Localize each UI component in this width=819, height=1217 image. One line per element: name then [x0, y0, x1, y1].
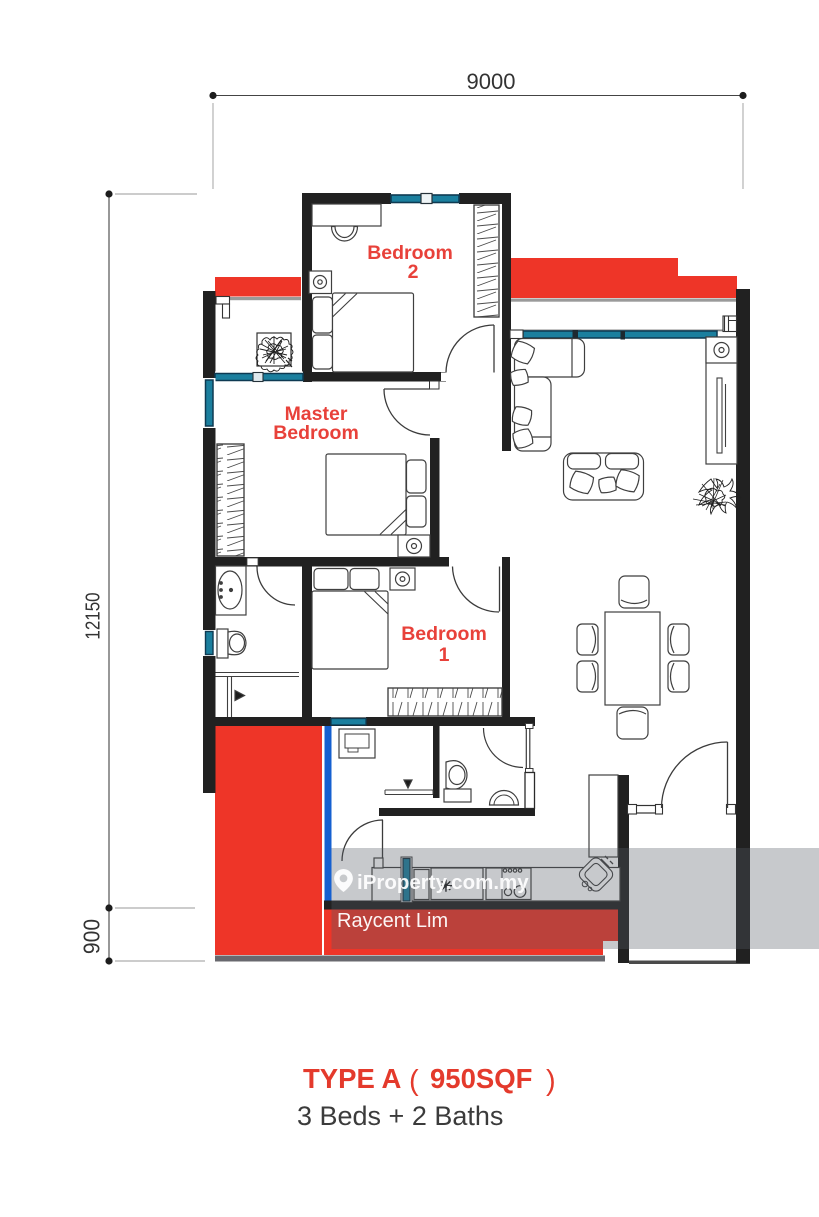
svg-text:12150: 12150	[81, 592, 104, 639]
svg-text:9000: 9000	[467, 69, 516, 94]
svg-text:900: 900	[79, 919, 105, 954]
svg-text:iProperty.com.my: iProperty.com.my	[357, 871, 529, 894]
svg-text:(: (	[409, 1065, 419, 1097]
svg-text:1: 1	[439, 644, 450, 666]
svg-text:TYPE A: TYPE A	[303, 1063, 401, 1094]
svg-text:Raycent Lim: Raycent Lim	[337, 910, 448, 932]
svg-text:3 Beds + 2 Baths: 3 Beds + 2 Baths	[297, 1101, 503, 1131]
svg-text:Bedroom: Bedroom	[273, 422, 359, 444]
svg-text:): )	[546, 1065, 556, 1097]
svg-text:2: 2	[408, 261, 419, 283]
svg-text:Bedroom: Bedroom	[401, 623, 487, 645]
svg-text:950SQF: 950SQF	[430, 1063, 532, 1094]
